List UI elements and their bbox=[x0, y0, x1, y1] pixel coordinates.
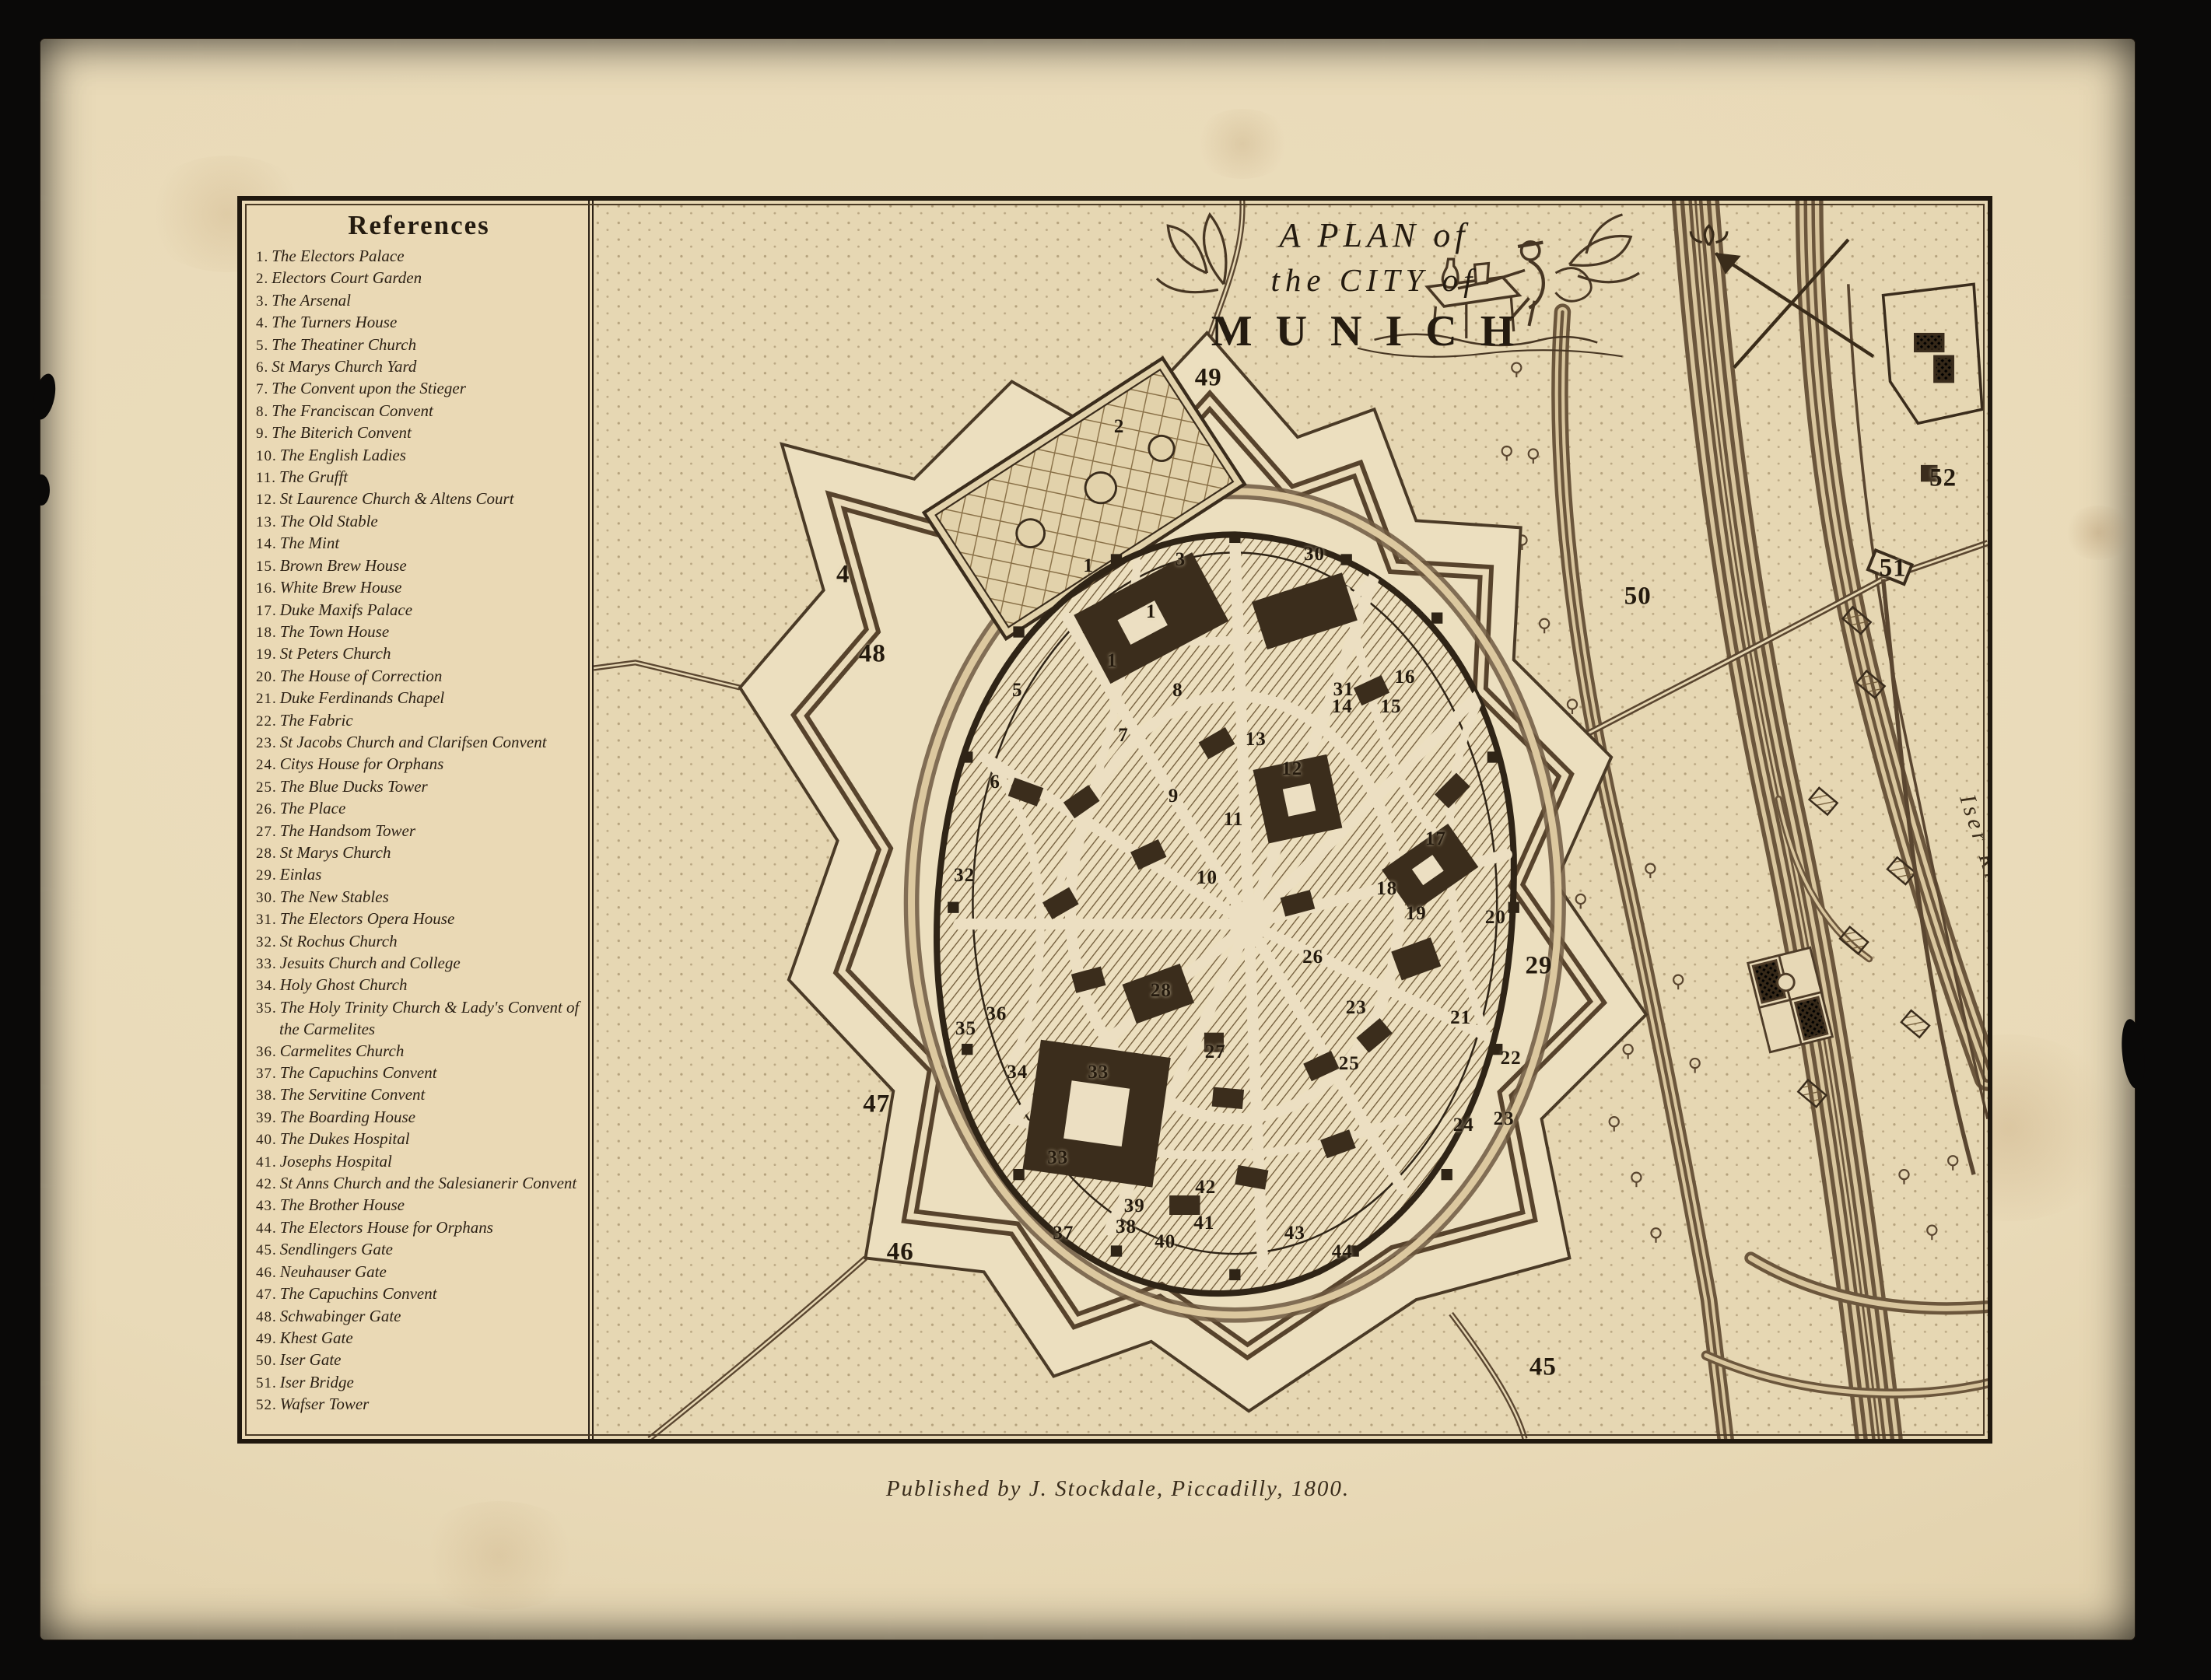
map-number-marker: 27 bbox=[1205, 1041, 1226, 1063]
reference-item: 34.Holy Ghost Church bbox=[256, 975, 582, 996]
map-number-marker: 51 bbox=[1880, 554, 1907, 583]
map-number-marker: 23 bbox=[1494, 1108, 1515, 1130]
paper-tear bbox=[2118, 1018, 2147, 1090]
reference-label: Josephs Hospital bbox=[280, 1152, 392, 1171]
reference-number: 39. bbox=[256, 1110, 280, 1126]
reference-number: 8. bbox=[256, 404, 272, 420]
reference-label: The Electors Opera House bbox=[280, 909, 455, 928]
reference-label: The Dukes Hospital bbox=[280, 1129, 410, 1148]
reference-number: 36. bbox=[256, 1044, 280, 1060]
reference-item: 39.The Boarding House bbox=[256, 1107, 582, 1129]
map-number-marker: 1 bbox=[1083, 555, 1094, 577]
munich-plan-drawing bbox=[594, 201, 1988, 1439]
reference-label: The English Ladies bbox=[280, 446, 406, 464]
reference-item: 18.The Town House bbox=[256, 621, 582, 643]
reference-label: The Handsom Tower bbox=[280, 821, 415, 840]
reference-number: 23. bbox=[256, 735, 280, 751]
map-number-marker: 12 bbox=[1281, 758, 1302, 780]
map-number-marker: 38 bbox=[1116, 1216, 1137, 1238]
reference-item: 31.The Electors Opera House bbox=[256, 908, 582, 930]
map-number-marker: 37 bbox=[1053, 1223, 1074, 1244]
map-number-marker: 33 bbox=[1047, 1147, 1068, 1169]
reference-label: The Brother House bbox=[280, 1195, 405, 1214]
reference-item: 47.The Capuchins Convent bbox=[256, 1283, 582, 1305]
reference-label: Electors Court Garden bbox=[272, 268, 422, 287]
map-number-marker: 22 bbox=[1501, 1048, 1522, 1069]
reference-item: 29.Einlas bbox=[256, 864, 582, 886]
reference-item: 19.St Peters Church bbox=[256, 643, 582, 665]
reference-number: 17. bbox=[256, 603, 280, 619]
reference-item: 14.The Mint bbox=[256, 533, 582, 555]
reference-item: 51.Iser Bridge bbox=[256, 1372, 582, 1394]
reference-number: 11. bbox=[256, 470, 279, 486]
reference-number: 12. bbox=[256, 492, 280, 508]
paper-tear bbox=[30, 372, 59, 422]
reference-item: 4.The Turners House bbox=[256, 312, 582, 334]
references-panel: References 1.The Electors Palace2.Electo… bbox=[242, 201, 594, 1439]
reference-item: 26.The Place bbox=[256, 798, 582, 820]
reference-number: 9. bbox=[256, 425, 272, 442]
map-number-marker: 32 bbox=[954, 865, 975, 887]
map-number-marker: 11 bbox=[1224, 809, 1244, 831]
reference-label: Duke Ferdinands Chapel bbox=[280, 688, 445, 707]
map-number-marker: 41 bbox=[1193, 1213, 1214, 1234]
reference-item: 50.Iser Gate bbox=[256, 1349, 582, 1371]
reference-label: Iser Gate bbox=[280, 1350, 342, 1369]
reference-label: St Laurence Church & Altens Court bbox=[280, 489, 514, 508]
reference-item: 28.St Marys Church bbox=[256, 842, 582, 864]
reference-label: The Turners House bbox=[272, 313, 397, 331]
reference-number: 51. bbox=[256, 1375, 280, 1391]
map-number-marker: 36 bbox=[986, 1003, 1007, 1025]
reference-label: Iser Bridge bbox=[280, 1373, 354, 1391]
reference-label: The Blue Ducks Tower bbox=[280, 777, 428, 796]
reference-label: Khest Gate bbox=[280, 1328, 353, 1347]
reference-label: The Electors House for Orphans bbox=[280, 1218, 493, 1237]
reference-number: 32. bbox=[256, 934, 280, 950]
map-number-marker: 49 bbox=[1195, 363, 1222, 392]
map-area: A PLAN of the CITY of MUNICH Iser River … bbox=[594, 201, 1988, 1439]
map-title: A PLAN of the CITY of MUNICH bbox=[1158, 215, 1591, 356]
reference-label: The Fabric bbox=[280, 711, 353, 730]
map-number-marker: 29 bbox=[1525, 951, 1552, 980]
map-number-marker: 46 bbox=[887, 1237, 914, 1266]
reference-number: 5. bbox=[256, 338, 272, 354]
map-number-marker: 35 bbox=[955, 1018, 976, 1040]
reference-number: 21. bbox=[256, 691, 280, 707]
foxing-stain bbox=[1192, 109, 1293, 179]
reference-label: Neuhauser Gate bbox=[280, 1262, 387, 1281]
title-line-1: A PLAN of bbox=[1158, 215, 1591, 255]
map-number-marker: 26 bbox=[1302, 947, 1323, 968]
reference-label: Carmelites Church bbox=[280, 1041, 405, 1060]
reference-item: 20.The House of Correction bbox=[256, 666, 582, 688]
reference-label: Holy Ghost Church bbox=[280, 975, 408, 994]
reference-item: 36.Carmelites Church bbox=[256, 1041, 582, 1062]
map-number-marker: 43 bbox=[1284, 1223, 1305, 1244]
title-line-3: MUNICH bbox=[1158, 306, 1591, 356]
reference-number: 35. bbox=[256, 1000, 280, 1017]
map-number-marker: 4 bbox=[836, 560, 850, 589]
reference-item: 1.The Electors Palace bbox=[256, 246, 582, 268]
reference-number: 40. bbox=[256, 1132, 280, 1148]
reference-label: The Convent upon the Stieger bbox=[272, 379, 466, 397]
reference-item: 44.The Electors House for Orphans bbox=[256, 1217, 582, 1239]
publication-line: Published by J. Stockdale, Piccadilly, 1… bbox=[886, 1476, 1350, 1502]
reference-label: The Mint bbox=[280, 534, 339, 552]
reference-number: 7. bbox=[256, 381, 272, 397]
map-number-marker: 21 bbox=[1450, 1007, 1471, 1029]
reference-label: The Holy Trinity Church & Lady's Convent… bbox=[279, 998, 579, 1038]
reference-item: 32.St Rochus Church bbox=[256, 931, 582, 953]
reference-item: 35.The Holy Trinity Church & Lady's Conv… bbox=[256, 997, 582, 1041]
reference-label: Wafser Tower bbox=[280, 1395, 370, 1413]
references-list: 1.The Electors Palace2.Electors Court Ga… bbox=[256, 246, 582, 1416]
reference-label: The Town House bbox=[280, 622, 389, 641]
map-number-marker: 16 bbox=[1394, 667, 1415, 688]
inner-city bbox=[937, 532, 1519, 1293]
map-number-marker: 8 bbox=[1172, 680, 1183, 702]
reference-number: 19. bbox=[256, 646, 280, 663]
reference-item: 22.The Fabric bbox=[256, 710, 582, 732]
map-number-marker: 25 bbox=[1339, 1053, 1360, 1075]
reference-number: 16. bbox=[256, 580, 280, 597]
reference-item: 42.St Anns Church and the Salesianerir C… bbox=[256, 1173, 582, 1195]
reference-label: St Marys Church Yard bbox=[272, 357, 416, 376]
map-number-marker: 18 bbox=[1376, 878, 1397, 900]
reference-item: 13.The Old Stable bbox=[256, 511, 582, 533]
reference-item: 25.The Blue Ducks Tower bbox=[256, 776, 582, 798]
reference-item: 2.Electors Court Garden bbox=[256, 268, 582, 289]
reference-number: 6. bbox=[256, 359, 272, 376]
map-number-marker: 1 bbox=[1107, 650, 1118, 672]
map-number-marker: 45 bbox=[1529, 1353, 1557, 1381]
map-number-marker: 9 bbox=[1169, 786, 1179, 807]
reference-item: 37.The Capuchins Convent bbox=[256, 1062, 582, 1084]
map-number-marker: 2 bbox=[1114, 416, 1125, 438]
reference-item: 43.The Brother House bbox=[256, 1195, 582, 1216]
reference-number: 3. bbox=[256, 293, 272, 310]
reference-number: 18. bbox=[256, 625, 280, 641]
map-number-marker: 19 bbox=[1406, 903, 1427, 925]
reference-number: 1. bbox=[256, 249, 272, 265]
reference-label: Citys House for Orphans bbox=[280, 754, 444, 773]
reference-label: The Electors Palace bbox=[272, 247, 404, 265]
reference-label: The Grufft bbox=[279, 467, 348, 486]
reference-number: 29. bbox=[256, 867, 280, 884]
reference-item: 10.The English Ladies bbox=[256, 445, 582, 467]
reference-label: The Arsenal bbox=[272, 291, 351, 310]
map-number-marker: 50 bbox=[1624, 583, 1652, 611]
map-number-marker: 24 bbox=[1453, 1115, 1474, 1136]
reference-label: Sendlingers Gate bbox=[280, 1240, 393, 1258]
reference-label: Schwabinger Gate bbox=[280, 1307, 401, 1325]
reference-item: 27.The Handsom Tower bbox=[256, 821, 582, 842]
map-number-marker: 48 bbox=[859, 639, 886, 668]
map-plate: References 1.The Electors Palace2.Electo… bbox=[237, 196, 1992, 1444]
reference-number: 24. bbox=[256, 757, 280, 773]
map-number-marker: 33 bbox=[1088, 1062, 1109, 1083]
reference-item: 8.The Franciscan Convent bbox=[256, 401, 582, 422]
reference-number: 27. bbox=[256, 824, 280, 840]
reference-label: Brown Brew House bbox=[280, 556, 407, 575]
reference-label: The House of Correction bbox=[280, 667, 443, 685]
reference-number: 47. bbox=[256, 1286, 280, 1303]
reference-label: St Peters Church bbox=[280, 644, 391, 663]
map-number-marker: 3 bbox=[1176, 549, 1186, 571]
reference-number: 33. bbox=[256, 956, 280, 972]
reference-item: 7.The Convent upon the Stieger bbox=[256, 378, 582, 400]
reference-label: The Capuchins Convent bbox=[280, 1284, 437, 1303]
map-number-marker: 1 bbox=[1146, 601, 1157, 623]
reference-number: 46. bbox=[256, 1265, 280, 1281]
map-number-marker: 20 bbox=[1485, 907, 1506, 929]
reference-number: 14. bbox=[256, 536, 280, 552]
map-number-marker: 23 bbox=[1346, 997, 1367, 1019]
map-number-marker: 5 bbox=[1012, 680, 1023, 702]
reference-number: 37. bbox=[256, 1066, 280, 1082]
reference-item: 21.Duke Ferdinands Chapel bbox=[256, 688, 582, 709]
reference-label: The Biterich Convent bbox=[272, 423, 412, 442]
map-number-marker: 52 bbox=[1929, 464, 1957, 492]
reference-number: 28. bbox=[256, 845, 280, 862]
reference-number: 10. bbox=[256, 448, 280, 464]
engraved-map-scan: References 1.The Electors Palace2.Electo… bbox=[0, 0, 2211, 1680]
reference-number: 38. bbox=[256, 1087, 280, 1104]
reference-item: 5.The Theatiner Church bbox=[256, 334, 582, 356]
map-number-marker: 6 bbox=[990, 772, 1000, 793]
reference-number: 52. bbox=[256, 1397, 280, 1413]
reference-item: 3.The Arsenal bbox=[256, 290, 582, 312]
reference-number: 41. bbox=[256, 1154, 280, 1171]
reference-item: 6.St Marys Church Yard bbox=[256, 356, 582, 378]
reference-label: Jesuits Church and College bbox=[280, 954, 461, 972]
reference-item: 11.The Grufft bbox=[256, 467, 582, 488]
reference-label: St Jacobs Church and Clarifsen Convent bbox=[280, 733, 547, 751]
map-number-marker: 31 bbox=[1333, 679, 1354, 701]
reference-item: 17.Duke Maxifs Palace bbox=[256, 600, 582, 621]
reference-number: 45. bbox=[256, 1242, 280, 1258]
map-number-marker: 28 bbox=[1151, 980, 1172, 1002]
map-number-marker: 17 bbox=[1425, 828, 1446, 850]
reference-number: 13. bbox=[256, 514, 280, 530]
map-number-marker: 39 bbox=[1124, 1195, 1145, 1217]
reference-number: 43. bbox=[256, 1198, 280, 1214]
map-number-marker: 7 bbox=[1118, 725, 1129, 747]
reference-item: 41.Josephs Hospital bbox=[256, 1151, 582, 1173]
reference-item: 16.White Brew House bbox=[256, 577, 582, 599]
reference-number: 49. bbox=[256, 1331, 280, 1347]
map-number-marker: 34 bbox=[1007, 1062, 1028, 1083]
reference-item: 9.The Biterich Convent bbox=[256, 422, 582, 444]
reference-item: 45.Sendlingers Gate bbox=[256, 1239, 582, 1261]
reference-number: 26. bbox=[256, 801, 280, 817]
reference-number: 50. bbox=[256, 1353, 280, 1369]
map-number-marker: 30 bbox=[1304, 544, 1325, 565]
references-heading: References bbox=[256, 210, 582, 241]
reference-label: The Place bbox=[280, 799, 346, 817]
reference-number: 22. bbox=[256, 713, 280, 730]
reference-label: St Anns Church and the Salesianerir Conv… bbox=[280, 1174, 576, 1192]
map-number-marker: 42 bbox=[1195, 1177, 1216, 1199]
reference-item: 48.Schwabinger Gate bbox=[256, 1306, 582, 1328]
reference-number: 30. bbox=[256, 890, 280, 906]
reference-label: White Brew House bbox=[280, 578, 402, 597]
title-line-2: the CITY of bbox=[1158, 261, 1591, 299]
reference-label: The New Stables bbox=[280, 887, 389, 906]
reference-item: 15.Brown Brew House bbox=[256, 555, 582, 577]
reference-number: 15. bbox=[256, 558, 280, 575]
reference-number: 42. bbox=[256, 1176, 280, 1192]
map-number-marker: 10 bbox=[1197, 867, 1218, 889]
reference-number: 20. bbox=[256, 669, 280, 685]
reference-item: 24.Citys House for Orphans bbox=[256, 754, 582, 775]
reference-label: The Capuchins Convent bbox=[280, 1063, 437, 1082]
map-number-marker: 44 bbox=[1332, 1241, 1353, 1263]
map-number-marker: 47 bbox=[863, 1090, 890, 1119]
reference-number: 2. bbox=[256, 271, 272, 287]
reference-label: The Theatiner Church bbox=[272, 335, 416, 354]
paper-tear bbox=[33, 474, 50, 506]
reference-item: 33.Jesuits Church and College bbox=[256, 953, 582, 975]
reference-item: 23.St Jacobs Church and Clarifsen Conven… bbox=[256, 732, 582, 754]
reference-number: 34. bbox=[256, 978, 280, 994]
reference-label: Einlas bbox=[280, 865, 322, 884]
reference-item: 40.The Dukes Hospital bbox=[256, 1129, 582, 1150]
foxing-stain bbox=[414, 1501, 585, 1610]
foxing-stain bbox=[2063, 506, 2133, 560]
reference-item: 38.The Servitine Convent bbox=[256, 1084, 582, 1106]
reference-label: St Rochus Church bbox=[280, 932, 398, 950]
map-number-marker: 15 bbox=[1381, 696, 1402, 718]
reference-item: 30.The New Stables bbox=[256, 887, 582, 908]
reference-item: 52.Wafser Tower bbox=[256, 1394, 582, 1416]
map-number-marker: 40 bbox=[1155, 1231, 1176, 1253]
reference-number: 44. bbox=[256, 1220, 280, 1237]
reference-item: 12.St Laurence Church & Altens Court bbox=[256, 488, 582, 510]
reference-label: The Old Stable bbox=[280, 512, 378, 530]
reference-label: The Boarding House bbox=[280, 1108, 415, 1126]
reference-item: 46.Neuhauser Gate bbox=[256, 1262, 582, 1283]
reference-number: 25. bbox=[256, 779, 280, 796]
reference-label: The Servitine Convent bbox=[280, 1085, 426, 1104]
reference-number: 31. bbox=[256, 912, 280, 928]
reference-label: Duke Maxifs Palace bbox=[280, 600, 412, 619]
reference-number: 48. bbox=[256, 1309, 280, 1325]
reference-label: The Franciscan Convent bbox=[272, 401, 433, 420]
reference-label: St Marys Church bbox=[280, 843, 391, 862]
map-number-marker: 13 bbox=[1246, 729, 1267, 751]
reference-number: 4. bbox=[256, 315, 272, 331]
reference-item: 49.Khest Gate bbox=[256, 1328, 582, 1349]
